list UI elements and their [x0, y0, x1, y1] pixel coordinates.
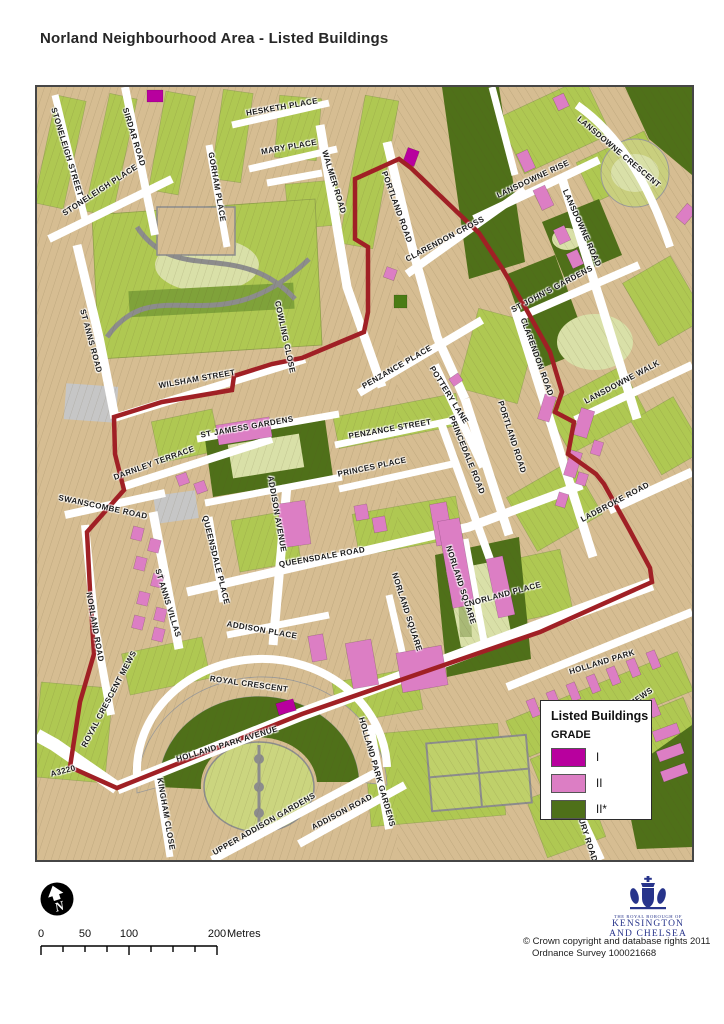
scale-number: 200: [208, 928, 226, 940]
legend-item: I: [551, 748, 651, 767]
legend-subtitle: GRADE: [551, 729, 651, 741]
legend-item: II: [551, 774, 651, 793]
legend-label: I: [596, 752, 599, 764]
borough-logo: THE ROYAL BOROUGH OF KENSINGTON AND CHEL…: [598, 876, 698, 939]
north-arrow: N: [38, 880, 78, 920]
scale-bar: 050100200Metres: [40, 928, 320, 962]
copyright-line2: Ordnance Survey 100021668: [523, 948, 710, 960]
grade2star-building: [394, 295, 407, 308]
legend-swatch: [551, 748, 586, 767]
legend: Listed Buildings GRADE IIIII*: [540, 700, 652, 820]
legend-title: Listed Buildings: [551, 709, 651, 723]
legend-swatch: [551, 774, 586, 793]
scale-number: 100: [120, 928, 138, 940]
scale-number: 50: [79, 928, 91, 940]
page-title: Norland Neighbourhood Area - Listed Buil…: [40, 30, 388, 47]
legend-label: II*: [596, 804, 607, 816]
scale-number: 0: [38, 928, 44, 940]
scale-unit: Metres: [227, 928, 261, 940]
map-frame: STONELEIGH STREETSIRDAR ROADSTONELEIGH P…: [35, 85, 694, 862]
page: Norland Neighbourhood Area - Listed Buil…: [0, 0, 724, 1024]
logo-line2: KENSINGTON: [598, 919, 698, 929]
copyright-line1: © Crown copyright and database rights 20…: [523, 936, 710, 948]
legend-swatch: [551, 800, 586, 819]
copyright-text: © Crown copyright and database rights 20…: [523, 936, 710, 960]
legend-label: II: [596, 778, 602, 790]
crest-icon: [626, 876, 670, 912]
legend-item: II*: [551, 800, 651, 819]
